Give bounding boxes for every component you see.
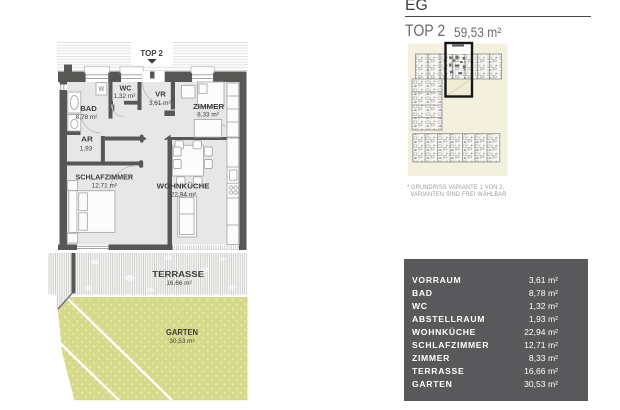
svg-text:BAD: BAD: [80, 104, 97, 113]
svg-text:3,61 m²: 3,61 m²: [149, 100, 171, 107]
svg-text:WOHNKÜCHE: WOHNKÜCHE: [157, 182, 210, 191]
svg-text:GARTEN: GARTEN: [166, 328, 198, 337]
svg-text:22,94 m²: 22,94 m²: [171, 192, 196, 199]
svg-text:8,78 m²: 8,78 m²: [76, 114, 98, 121]
svg-text:30,53 m²: 30,53 m²: [169, 338, 194, 345]
svg-text:1,93: 1,93: [80, 146, 93, 153]
svg-text:16,66 m²: 16,66 m²: [166, 280, 191, 287]
svg-text:ZIMMER: ZIMMER: [193, 102, 224, 111]
svg-text:VR: VR: [155, 90, 167, 99]
svg-text:WC: WC: [120, 84, 132, 93]
svg-text:8,33 m²: 8,33 m²: [197, 112, 219, 119]
svg-text:TERRASSE: TERRASSE: [152, 270, 204, 279]
svg-text:AR: AR: [81, 135, 94, 144]
svg-text:1,32 m²: 1,32 m²: [114, 93, 136, 100]
svg-text:TOP 2: TOP 2: [140, 49, 163, 58]
svg-text:SCHLAFZIMMER: SCHLAFZIMMER: [76, 173, 134, 182]
svg-text:W: W: [98, 87, 104, 93]
svg-text:12,71 m²: 12,71 m²: [92, 183, 117, 190]
